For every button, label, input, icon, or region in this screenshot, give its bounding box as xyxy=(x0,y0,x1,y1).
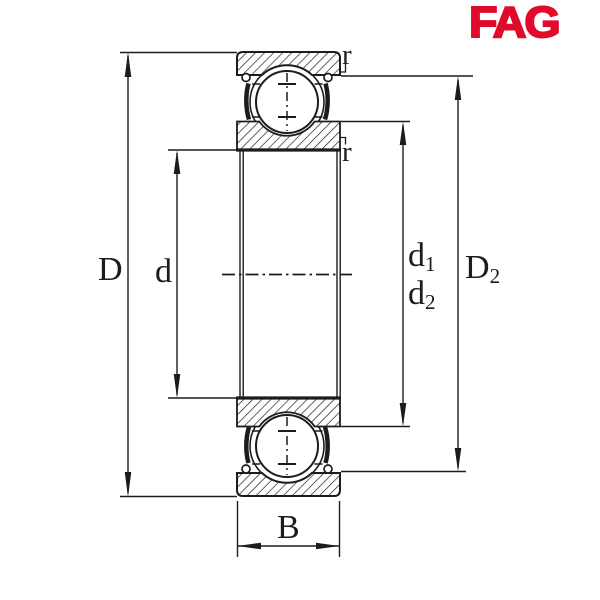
label-width-B: B xyxy=(277,511,300,545)
shield-top-right xyxy=(324,74,332,120)
bearing-drawing-page: D d d1 d2 D2 B r r FAG xyxy=(0,0,600,600)
fag-logo: FAG xyxy=(469,4,588,42)
shield-anchor-bottom-left xyxy=(242,465,250,473)
label-shoulder-diameter-D2: D2 xyxy=(465,251,500,285)
top-half-section xyxy=(236,52,341,150)
bore-section xyxy=(222,150,352,398)
label-recess-diameter-d1: d1 xyxy=(408,239,436,273)
shield-anchor-top-left xyxy=(242,74,250,82)
shield-anchor-top-right xyxy=(324,74,332,82)
label-bore-diameter-d: d xyxy=(155,255,172,289)
shield-top-left xyxy=(242,74,250,120)
dimension-D2 xyxy=(341,76,473,472)
bottom-half-section xyxy=(236,398,341,496)
shield-bottom-left xyxy=(242,427,250,473)
label-outer-diameter-D: D xyxy=(98,253,123,287)
shield-anchor-bottom-right xyxy=(324,465,332,473)
label-radius-r-inner: r xyxy=(342,138,352,167)
bearing-cross-section-figure xyxy=(0,0,600,600)
label-radius-r-outer: r xyxy=(342,41,352,70)
shield-bottom-right xyxy=(324,427,332,473)
dimension-D xyxy=(120,52,237,497)
label-recess-diameter-d2: d2 xyxy=(408,277,436,311)
